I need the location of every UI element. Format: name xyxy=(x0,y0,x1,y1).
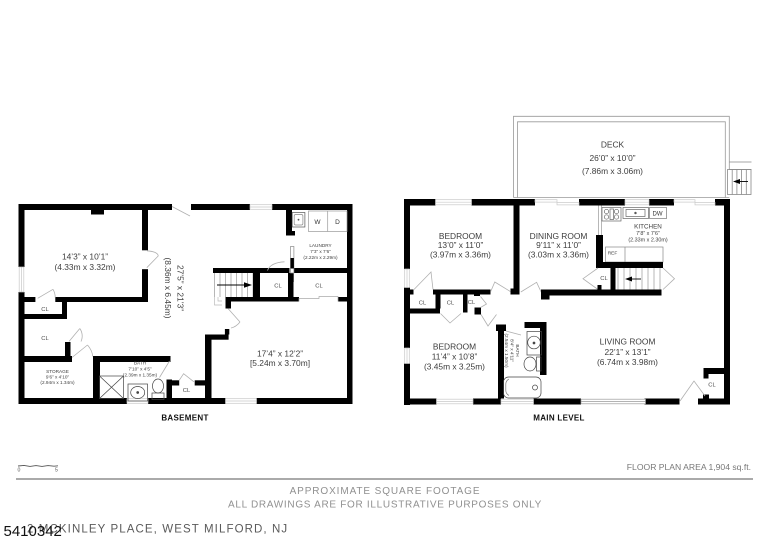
svg-text:DW: DW xyxy=(653,212,663,218)
svg-text:CL: CL xyxy=(274,284,282,290)
svg-text:BASEMENT: BASEMENT xyxy=(161,414,208,423)
svg-text:CL: CL xyxy=(315,284,323,290)
svg-text:ALL DRAWINGS ARE FOR ILLUSTRAT: ALL DRAWINGS ARE FOR ILLUSTRATIVE PURPOS… xyxy=(228,500,542,511)
svg-text:BATH8’4” x 4’11”(2.54m x 1.50m: BATH8’4” x 4’11”(2.54m x 1.50m) xyxy=(504,333,520,368)
svg-text:5410342: 5410342 xyxy=(4,523,62,540)
svg-text:26’0” x 10’0”: 26’0” x 10’0” xyxy=(589,153,635,163)
svg-text:(3.03m x 3.36m): (3.03m x 3.36m) xyxy=(528,250,589,260)
svg-text:CL: CL xyxy=(468,300,476,306)
svg-text:0: 0 xyxy=(18,468,21,474)
svg-text:KITCHEN: KITCHEN xyxy=(634,224,662,231)
svg-text:DECK: DECK xyxy=(601,140,625,150)
svg-text:9’6” x 4’10”: 9’6” x 4’10” xyxy=(46,375,70,380)
svg-text:CL: CL xyxy=(41,336,49,342)
svg-text:2 MCKINLEY PLACE, WEST MILFORD: 2 MCKINLEY PLACE, WEST MILFORD, NJ xyxy=(27,524,288,536)
svg-text:REF: REF xyxy=(608,251,618,257)
svg-text:9’11” x 11’0”: 9’11” x 11’0” xyxy=(536,240,581,250)
svg-text:13’0” x 11’0”: 13’0” x 11’0” xyxy=(438,240,484,250)
svg-text:BATH: BATH xyxy=(134,361,146,366)
svg-text:5: 5 xyxy=(55,468,58,474)
svg-text:14’3” x 10’1”: 14’3” x 10’1” xyxy=(62,252,108,262)
svg-text:LAUNDRY: LAUNDRY xyxy=(309,243,332,248)
svg-text:7’8” x 7’6”: 7’8” x 7’6” xyxy=(636,231,660,237)
svg-text:(2.33m x 2.30m): (2.33m x 2.30m) xyxy=(628,238,667,244)
svg-text:CL: CL xyxy=(419,301,427,307)
svg-text:CL: CL xyxy=(41,307,49,313)
svg-text:7’3” x 7’6”: 7’3” x 7’6” xyxy=(310,249,331,254)
svg-text:MAIN LEVEL: MAIN LEVEL xyxy=(533,414,584,423)
svg-text:(7.86m x 3.06m): (7.86m x 3.06m) xyxy=(582,166,643,176)
svg-text:(3.97m x 3.36m): (3.97m x 3.36m) xyxy=(430,250,491,260)
svg-text:(3.45m x 3.25m): (3.45m x 3.25m) xyxy=(424,362,485,372)
svg-text:(6.74m x 3.98m): (6.74m x 3.98m) xyxy=(597,357,658,367)
svg-text:22’1” x 13’1”: 22’1” x 13’1” xyxy=(604,347,650,357)
svg-text:(2.39m x 1.35m): (2.39m x 1.35m) xyxy=(123,373,158,378)
svg-text:11’4” x 10’8”: 11’4” x 10’8” xyxy=(432,352,478,362)
svg-text:BEDROOM: BEDROOM xyxy=(433,342,476,352)
svg-text:CL: CL xyxy=(600,276,608,282)
svg-text:LIVING ROOM: LIVING ROOM xyxy=(600,337,656,347)
svg-text:[5.24m x 3.70m]: [5.24m x 3.70m] xyxy=(250,358,310,368)
svg-text:27’5” x 21’3”(8.36m x 6.45m): 27’5” x 21’3”(8.36m x 6.45m) xyxy=(163,258,186,319)
svg-text:D: D xyxy=(335,219,340,226)
svg-text:APPROXIMATE SQUARE FOOTAGE: APPROXIMATE SQUARE FOOTAGE xyxy=(290,486,481,497)
svg-text:(2.94m x 1.34m): (2.94m x 1.34m) xyxy=(40,380,75,385)
svg-text:W: W xyxy=(314,219,321,226)
svg-text:CL: CL xyxy=(183,388,191,394)
svg-text:(4.33m x 3.32m): (4.33m x 3.32m) xyxy=(55,262,116,272)
svg-text:CL: CL xyxy=(708,383,716,389)
svg-text:7’10” x 4’5”: 7’10” x 4’5” xyxy=(128,367,152,372)
svg-text:(2.22m x 2.29m): (2.22m x 2.29m) xyxy=(303,255,338,260)
svg-text:STORAGE: STORAGE xyxy=(46,369,69,374)
svg-text:CL: CL xyxy=(447,301,455,307)
svg-text:FLOOR PLAN AREA 1,904 sq.ft.: FLOOR PLAN AREA 1,904 sq.ft. xyxy=(627,462,751,472)
